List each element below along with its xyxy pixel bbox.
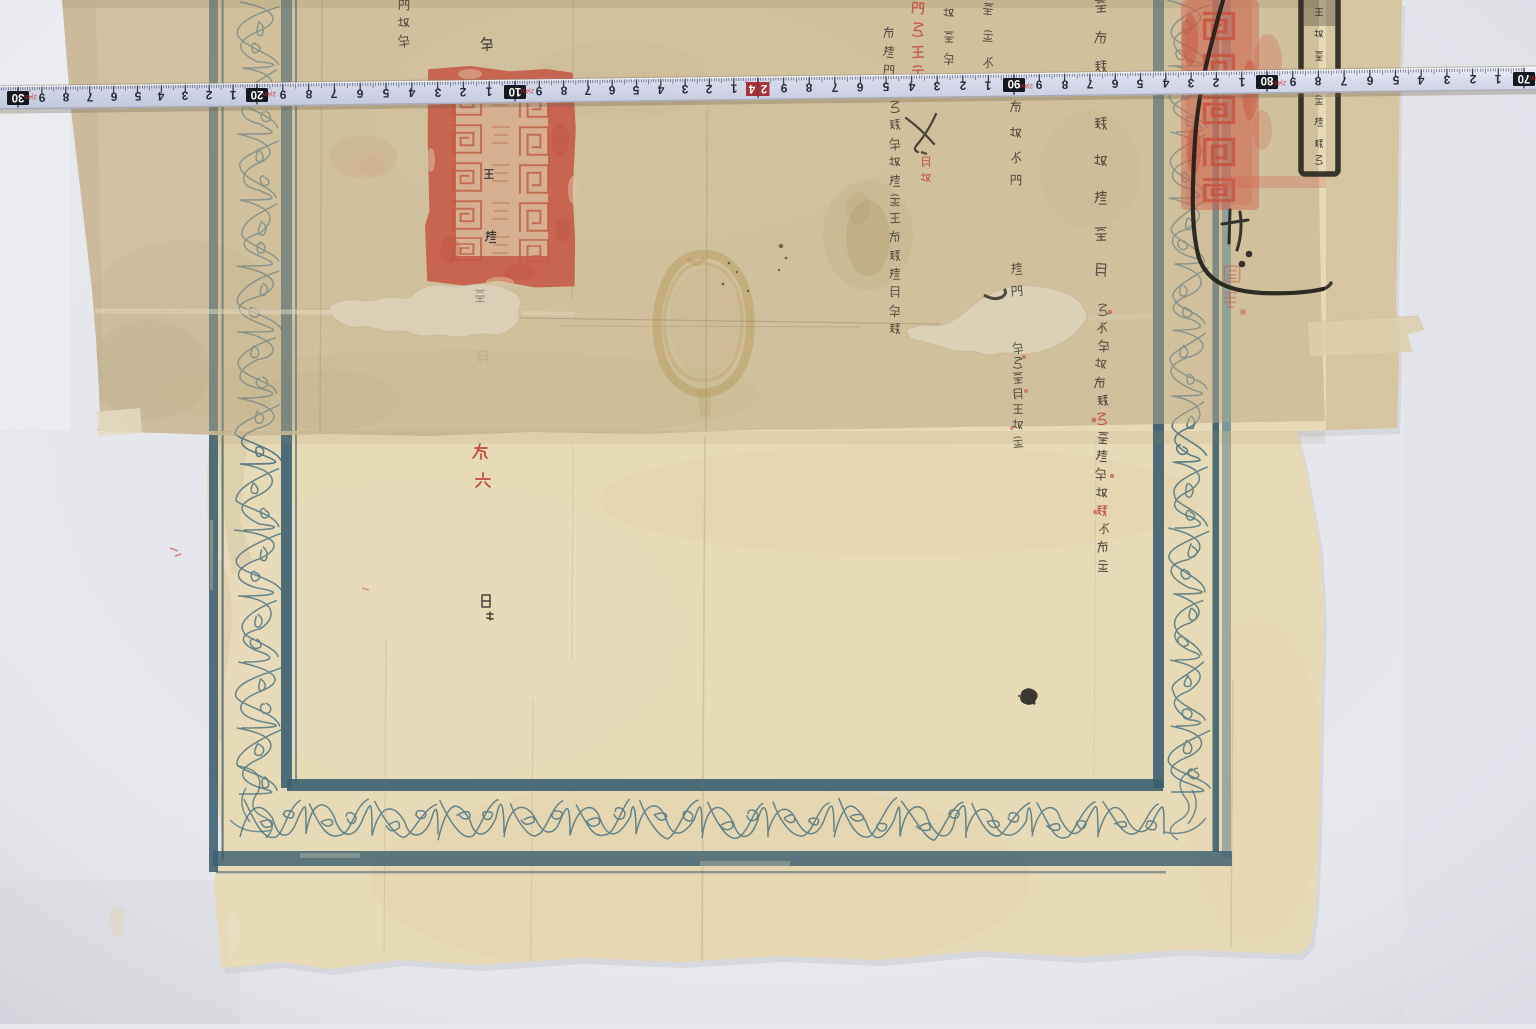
svg-text:8: 8 bbox=[1314, 74, 1321, 88]
svg-text:1: 1 bbox=[984, 78, 991, 92]
svg-text:3: 3 bbox=[1443, 73, 1450, 87]
svg-text:2|4m: 2|4m bbox=[1273, 79, 1286, 85]
svg-text:4: 4 bbox=[657, 83, 664, 97]
svg-text:1: 1 bbox=[1494, 72, 1501, 86]
svg-text:3: 3 bbox=[181, 89, 188, 103]
svg-text:9: 9 bbox=[1289, 75, 1296, 89]
svg-text:9: 9 bbox=[780, 81, 787, 95]
svg-text:8: 8 bbox=[62, 90, 69, 104]
svg-text:4: 4 bbox=[748, 82, 755, 94]
svg-text:2|4m: 2|4m bbox=[521, 87, 534, 93]
svg-text:9: 9 bbox=[535, 84, 542, 98]
svg-text:2|4m: 2|4m bbox=[1020, 82, 1033, 88]
svg-text:8: 8 bbox=[805, 81, 812, 95]
svg-text:9: 9 bbox=[38, 90, 45, 104]
svg-text:9: 9 bbox=[279, 87, 286, 101]
svg-text:2|4m: 2|4m bbox=[1530, 74, 1536, 80]
svg-text:6: 6 bbox=[1111, 77, 1118, 91]
svg-text:5: 5 bbox=[882, 80, 889, 94]
svg-text:3: 3 bbox=[1187, 76, 1194, 90]
svg-text:9: 9 bbox=[1035, 78, 1042, 92]
svg-text:2: 2 bbox=[705, 82, 712, 96]
svg-text:80: 80 bbox=[1261, 74, 1274, 86]
svg-text:1: 1 bbox=[730, 82, 737, 96]
svg-text:5: 5 bbox=[632, 83, 639, 97]
svg-text:8: 8 bbox=[1061, 77, 1068, 91]
svg-text:7: 7 bbox=[831, 80, 838, 94]
svg-text:10: 10 bbox=[509, 85, 522, 97]
svg-text:2: 2 bbox=[1212, 76, 1219, 90]
svg-text:7: 7 bbox=[86, 90, 93, 104]
svg-text:8: 8 bbox=[560, 84, 567, 98]
svg-text:2: 2 bbox=[459, 85, 466, 99]
svg-text:90: 90 bbox=[1008, 77, 1021, 89]
svg-text:1: 1 bbox=[229, 88, 236, 102]
svg-text:2: 2 bbox=[959, 79, 966, 93]
svg-text:6: 6 bbox=[856, 80, 863, 94]
svg-text:3: 3 bbox=[933, 79, 940, 93]
svg-text:4: 4 bbox=[1162, 76, 1169, 90]
svg-text:5: 5 bbox=[134, 89, 141, 103]
svg-text:6: 6 bbox=[110, 90, 117, 104]
svg-text:3: 3 bbox=[434, 85, 441, 99]
svg-text:1: 1 bbox=[1238, 75, 1245, 89]
svg-text:7: 7 bbox=[1340, 74, 1347, 88]
svg-text:7: 7 bbox=[330, 87, 337, 101]
svg-text:2|4m: 2|4m bbox=[263, 90, 276, 96]
svg-text:4: 4 bbox=[408, 86, 415, 100]
svg-text:70: 70 bbox=[1518, 72, 1531, 84]
svg-text:20: 20 bbox=[251, 88, 264, 100]
svg-text:5: 5 bbox=[382, 86, 389, 100]
svg-text:3: 3 bbox=[681, 82, 688, 96]
svg-text:2: 2 bbox=[205, 88, 212, 102]
svg-text:7: 7 bbox=[1086, 77, 1093, 91]
svg-text:2|4m: 2|4m bbox=[24, 93, 37, 99]
svg-text:1: 1 bbox=[485, 85, 492, 99]
svg-text:4: 4 bbox=[157, 89, 164, 103]
svg-text:30: 30 bbox=[12, 91, 25, 103]
svg-text:2: 2 bbox=[1469, 72, 1476, 86]
svg-text:6: 6 bbox=[356, 86, 363, 100]
svg-text:4: 4 bbox=[1417, 73, 1424, 87]
svg-text:5: 5 bbox=[1136, 76, 1143, 90]
svg-text:7: 7 bbox=[584, 83, 591, 97]
svg-text:6: 6 bbox=[608, 83, 615, 97]
svg-text:4: 4 bbox=[908, 79, 915, 93]
svg-text:6: 6 bbox=[1366, 74, 1373, 88]
svg-text:2: 2 bbox=[761, 82, 767, 94]
svg-text:8: 8 bbox=[305, 87, 312, 101]
svg-text:5: 5 bbox=[1392, 73, 1399, 87]
